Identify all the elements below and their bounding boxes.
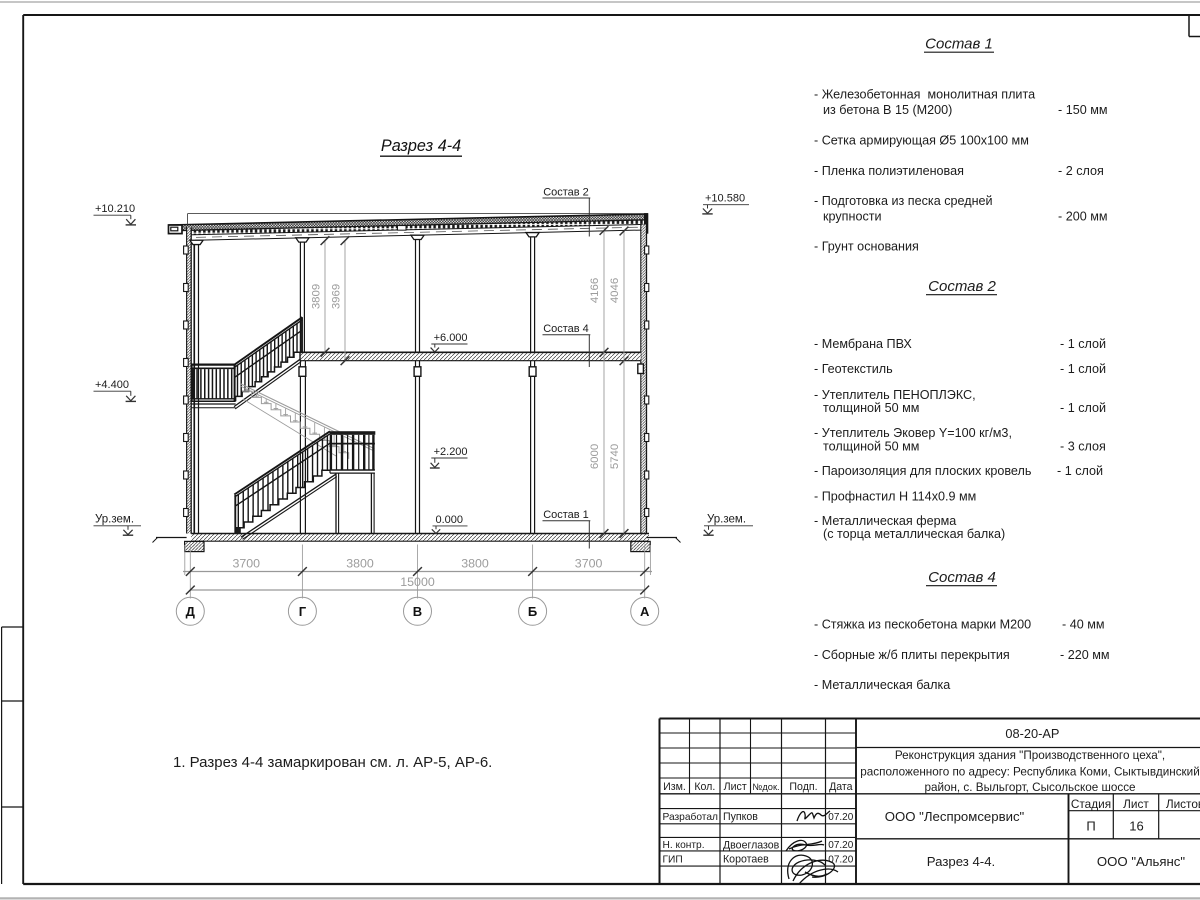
svg-text:- 40 мм: - 40 мм [1062,617,1105,631]
svg-text:- 150 мм: - 150 мм [1058,103,1108,117]
svg-text:Б: Б [528,604,537,619]
svg-text:- 1 слой: - 1 слой [1060,337,1106,351]
svg-text:- 1 слой: - 1 слой [1060,401,1106,415]
svg-text:+6.000: +6.000 [434,332,468,344]
svg-text:Разработал: Разработал [663,811,719,823]
svg-text:4046: 4046 [609,278,621,303]
svg-text:Состав 2: Состав 2 [928,278,996,295]
svg-text:- 220 мм: - 220 мм [1060,648,1110,662]
svg-text:Двоеглазов: Двоеглазов [723,839,780,851]
svg-text:Состав 1: Состав 1 [543,509,589,521]
svg-text:07.20: 07.20 [828,840,853,851]
svg-text:ГИП: ГИП [663,854,683,865]
svg-text:Состав 4: Состав 4 [543,323,589,335]
svg-text:- Пароизоляция для плоских кро: - Пароизоляция для плоских кровель [814,464,1032,478]
svg-text:+10.580: +10.580 [705,193,745,205]
svg-text:- Грунт основания: - Грунт основания [814,239,919,253]
svg-text:Г: Г [299,604,307,619]
svg-text:Стадия: Стадия [1071,797,1111,811]
svg-text:- Пленка полиэтиленовая: - Пленка полиэтиленовая [814,164,964,178]
svg-text:- Железобетонная монолитная п: - Железобетонная монолитная плита [814,87,1035,101]
svg-text:Н. контр.: Н. контр. [663,840,705,851]
svg-text:3700: 3700 [233,557,261,571]
svg-text:- Сетка армирующая Ø5 100х100: - Сетка армирующая Ø5 100х100 мм [814,133,1029,147]
svg-text:Лист: Лист [1123,797,1149,811]
svg-text:6000: 6000 [589,444,601,469]
svg-text:- Профнастил Н 114х0.9 мм: - Профнастил Н 114х0.9 мм [814,489,976,503]
svg-text:А: А [640,604,650,619]
svg-text:Кол.: Кол. [694,781,715,793]
svg-text:- 1 слой: - 1 слой [1060,362,1106,376]
svg-text:Реконструкция здания "Производ: Реконструкция здания "Производственного … [895,749,1165,762]
svg-text:5740: 5740 [609,444,621,469]
svg-text:Состав 4: Состав 4 [928,569,996,586]
svg-text:- Мембрана ПВХ: - Мембрана ПВХ [814,337,912,351]
svg-text:толщиной 50 мм: толщиной 50 мм [823,401,919,415]
svg-text:крупности: крупности [823,210,882,224]
svg-text:- Геотекстиль: - Геотекстиль [814,362,893,376]
svg-text:В: В [413,604,422,619]
svg-text:№док.: №док. [752,782,779,792]
svg-text:+4.400: +4.400 [95,379,129,391]
svg-text:Разрез 4-4.: Разрез 4-4. [927,854,995,869]
svg-text:Листов: Листов [1166,797,1200,811]
svg-text:Разрез 4-4: Разрез 4-4 [381,137,461,155]
svg-text:- 200 мм: - 200 мм [1058,210,1108,224]
svg-text:Лист: Лист [724,781,747,793]
svg-text:1. Разрез 4-4 замаркирован см.: 1. Разрез 4-4 замаркирован см. л. АР-5, … [173,754,492,771]
svg-text:- Металлическая балка: - Металлическая балка [814,678,950,692]
svg-text:район, с. Выльгорт, Сысольское: район, с. Выльгорт, Сысольское шоссе [924,781,1135,794]
svg-text:0.000: 0.000 [436,514,464,526]
svg-text:- 3 слоя: - 3 слоя [1060,439,1106,453]
svg-text:Подп.: Подп. [789,781,817,793]
svg-text:Коротаев: Коротаев [723,854,769,866]
svg-text:Состав 1: Состав 1 [925,36,993,53]
svg-text:П: П [1086,819,1095,834]
svg-text:4166: 4166 [589,278,601,303]
svg-text:- Утеплитель Эковер Y=100 кг/м: - Утеплитель Эковер Y=100 кг/м3, [814,426,1012,440]
svg-text:- Подготовка из песка средней: - Подготовка из песка средней [814,194,993,208]
svg-text:16: 16 [1129,819,1143,834]
svg-text:3800: 3800 [461,557,489,571]
svg-text:Ур.зем.: Ур.зем. [95,514,134,526]
svg-text:07.20: 07.20 [828,812,853,823]
svg-text:(с торца металлическая балка): (с торца металлическая балка) [823,527,1005,541]
svg-text:+2.200: +2.200 [434,446,468,458]
svg-text:- 1 слой: - 1 слой [1057,464,1103,478]
svg-text:Дата: Дата [829,781,853,793]
svg-text:- 2 слоя: - 2 слоя [1058,164,1104,178]
svg-text:Состав 2: Состав 2 [543,186,589,198]
svg-text:- Металлическая ферма: - Металлическая ферма [814,514,956,528]
svg-text:расположенного по адресу: Респ: расположенного по адресу: Республика Ком… [860,766,1199,779]
svg-text:из бетона В 15 (М200): из бетона В 15 (М200) [823,103,952,117]
svg-text:толщиной 50 мм: толщиной 50 мм [823,439,919,453]
svg-text:+10.210: +10.210 [95,203,135,215]
svg-text:Изм.: Изм. [663,781,686,793]
svg-text:Ур.зем.: Ур.зем. [707,514,746,526]
svg-text:08-20-АР: 08-20-АР [1005,726,1059,741]
svg-text:Пупков: Пупков [723,811,758,823]
svg-text:07.20: 07.20 [828,854,853,865]
svg-text:- Утеплитель ПЕНОПЛЭКС,: - Утеплитель ПЕНОПЛЭКС, [814,388,976,402]
svg-text:3800: 3800 [346,557,374,571]
svg-text:3809: 3809 [311,284,323,309]
svg-text:Д: Д [186,604,196,619]
svg-text:- Стяжка из пескобетона марки: - Стяжка из пескобетона марки М200 [814,617,1031,631]
svg-text:- Сборные ж/б плиты перекрытия: - Сборные ж/б плиты перекрытия [814,648,1010,662]
svg-text:ООО "Леспромсервис": ООО "Леспромсервис" [885,809,1025,824]
svg-text:3700: 3700 [575,557,603,571]
svg-text:3969: 3969 [331,284,343,309]
svg-text:ООО "Альянс": ООО "Альянс" [1097,854,1185,869]
svg-text:15000: 15000 [400,575,435,589]
